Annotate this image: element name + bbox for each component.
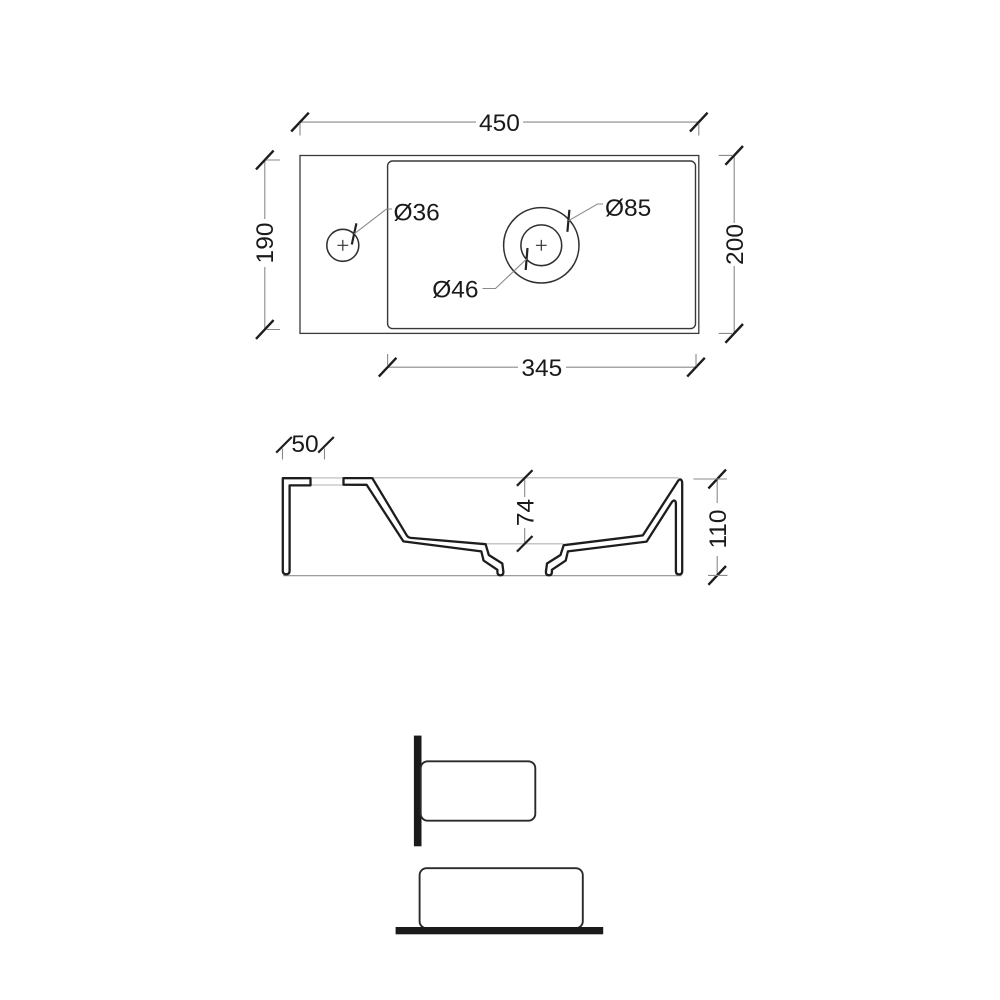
svg-text:74: 74 (512, 499, 539, 526)
svg-text:Ø36: Ø36 (394, 200, 440, 227)
svg-text:190: 190 (252, 223, 279, 264)
svg-text:110: 110 (705, 509, 732, 548)
svg-text:345: 345 (521, 355, 562, 382)
svg-text:Ø46: Ø46 (432, 277, 478, 304)
svg-text:450: 450 (479, 110, 520, 137)
svg-text:200: 200 (722, 224, 749, 265)
svg-text:Ø85: Ø85 (605, 195, 651, 222)
svg-text:50: 50 (291, 431, 318, 458)
